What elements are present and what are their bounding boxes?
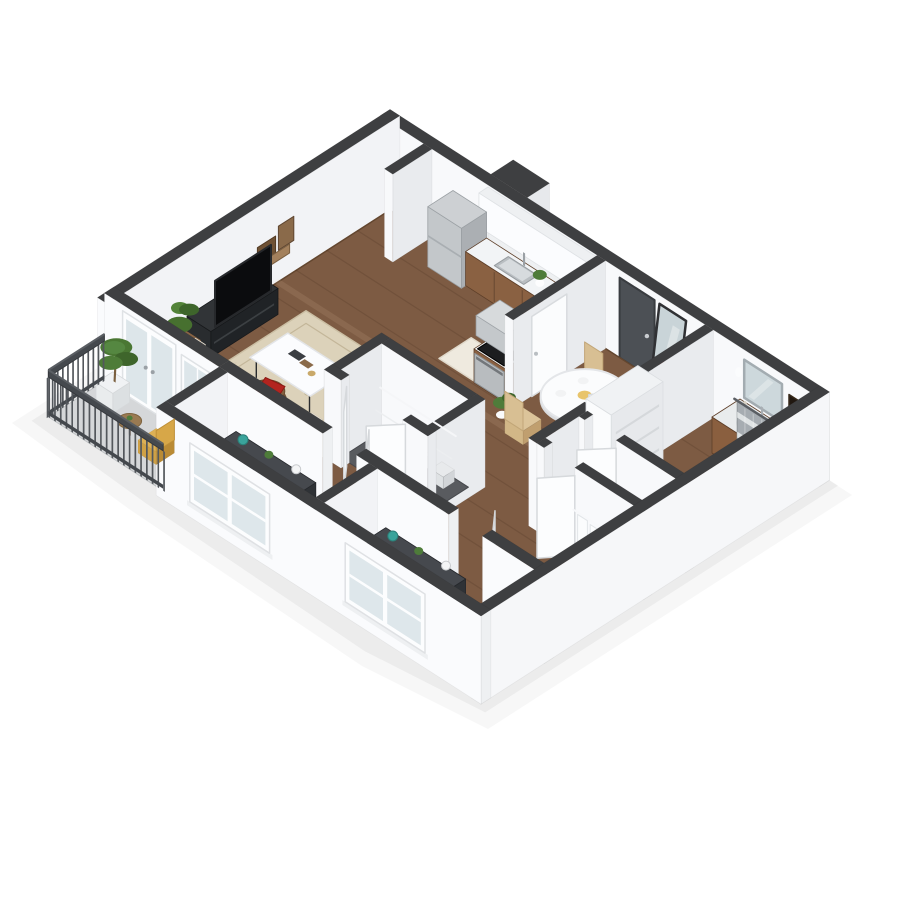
pantry-door-knob [534,352,538,356]
dresser1-globe [238,435,248,445]
counter-plant-leaves [533,270,547,280]
entry-door-handle [645,334,649,338]
palm-frond-2 [103,341,125,354]
south-exterior-wall-east-face [481,610,491,704]
dresser1-plant [264,451,273,459]
closet2-door-open [537,476,575,559]
dresser2-globe [388,531,398,541]
living-plant-leaf-3 [179,304,199,316]
palm-frond-4 [99,356,123,370]
bathroom-sconce [735,367,742,377]
floor-plan-render-canvas [0,0,900,900]
french-door-handle-2 [151,370,155,374]
balcony-railing-west-slat [47,377,49,418]
french-door-handle-1 [144,366,148,370]
midcloset-door-1 [344,387,347,492]
kitchen-stub-wall-south-face [384,169,392,262]
coffee-table-bowl [308,371,316,377]
bathroom-west-wall-lower-south-face [529,438,537,531]
counter-plant-pot [535,279,544,287]
apartment-3d-floor-plan [0,0,900,900]
cabinet-seam-1 [494,272,495,303]
place-setting-1 [578,377,589,384]
place-setting-3 [555,390,566,397]
balcony-railing-west-top-highlight [48,334,104,370]
dresser2-clock [442,561,451,570]
kitchen-faucet [523,252,525,266]
balcony-railing-south-slat [163,451,165,492]
dresser1-clock [292,465,301,474]
dresser2-plant [414,547,423,555]
